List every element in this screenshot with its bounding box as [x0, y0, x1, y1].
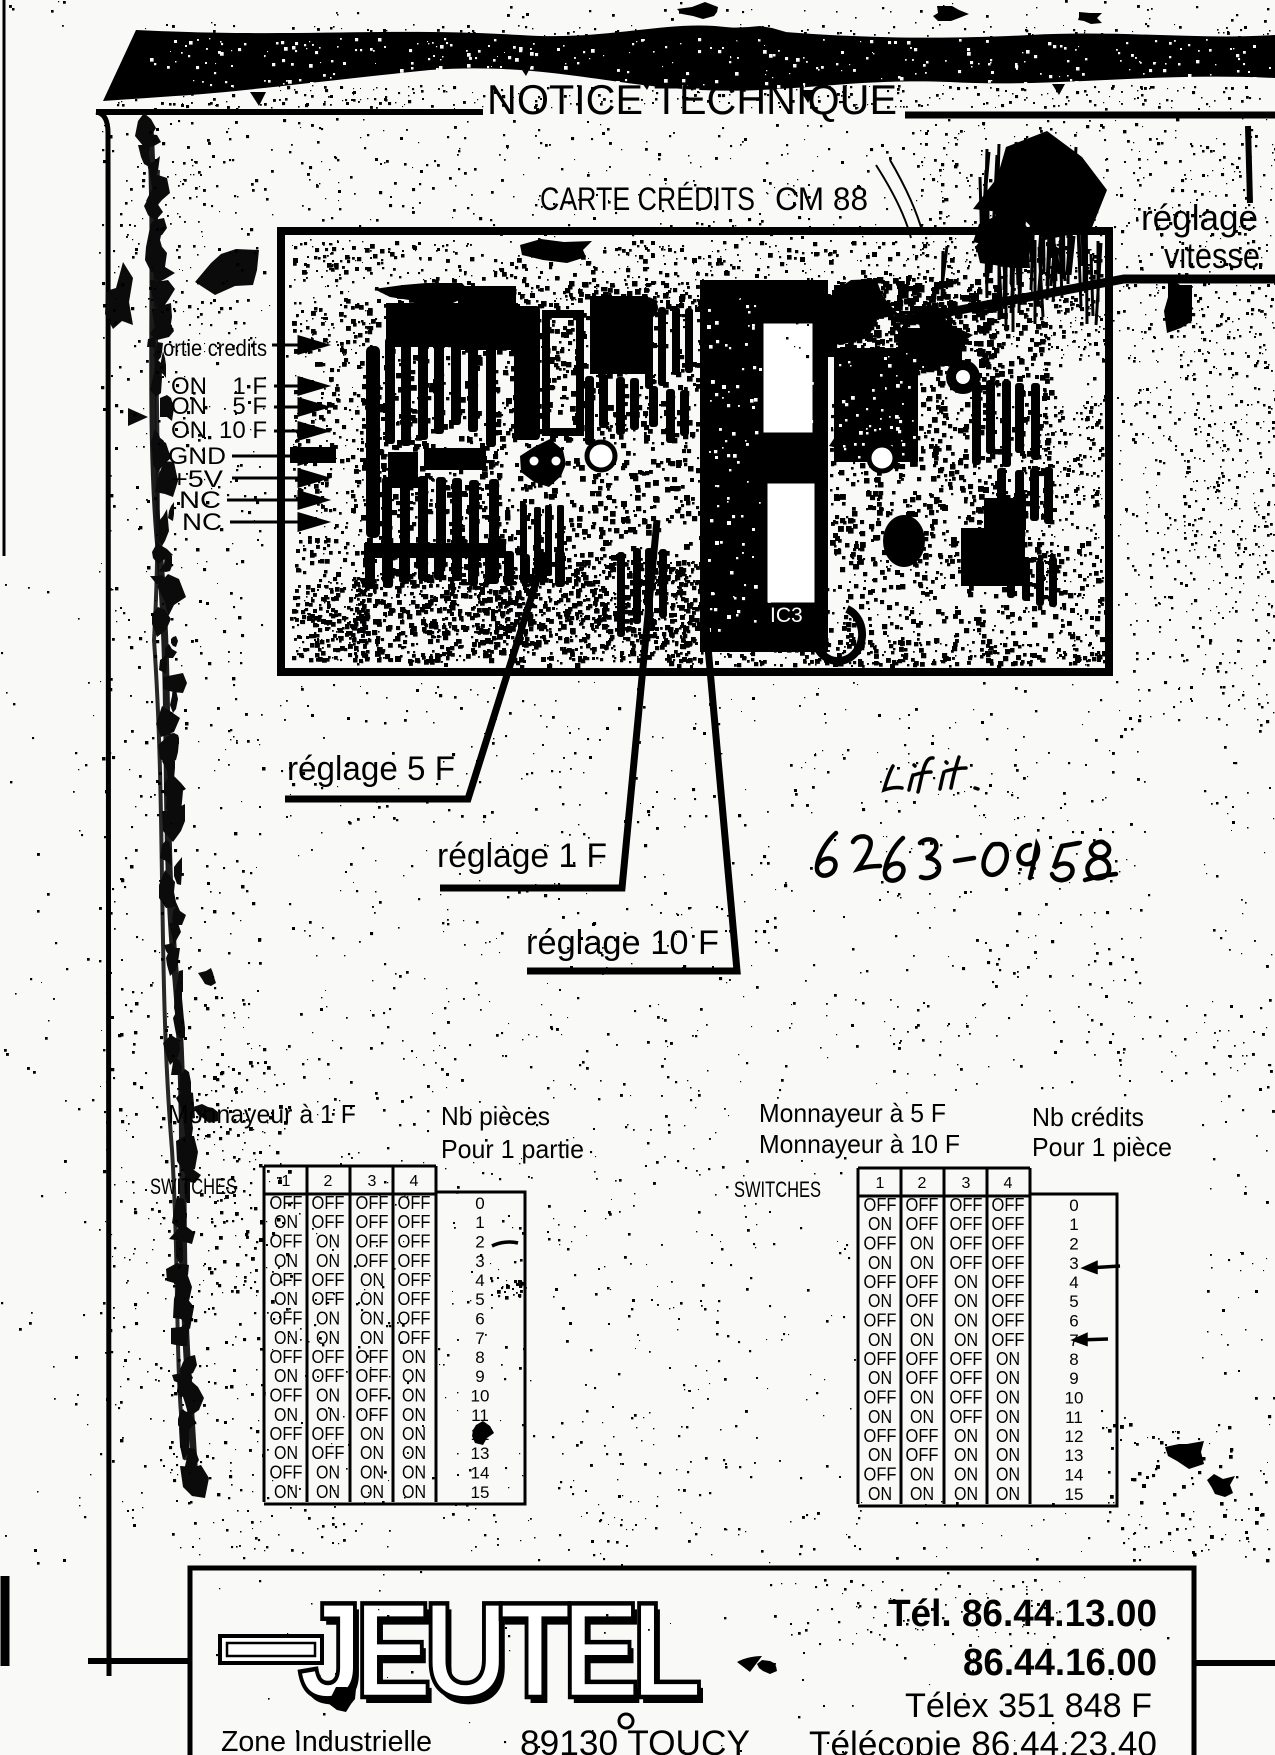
svg-text:OFF: OFF	[864, 1311, 897, 1331]
svg-text:13: 13	[1065, 1446, 1084, 1465]
svg-text:OFF: OFF	[906, 1349, 939, 1369]
svg-text:ON: ON	[954, 1291, 978, 1311]
svg-text:OFF: OFF	[398, 1212, 431, 1232]
svg-text:ON: ON	[868, 1407, 892, 1427]
svg-text:9: 9	[475, 1367, 484, 1386]
svg-text:4: 4	[1069, 1273, 1078, 1292]
svg-text:OFF: OFF	[356, 1232, 389, 1252]
svg-text:OFF: OFF	[356, 1193, 389, 1213]
svg-text:OFF: OFF	[398, 1270, 431, 1290]
svg-text:6: 6	[475, 1310, 484, 1329]
svg-text:ON: ON	[316, 1463, 340, 1483]
svg-text:ON: ON	[316, 1232, 340, 1252]
svg-text:ON: ON	[868, 1253, 892, 1273]
svg-text:Télex 351 848 F: Télex 351 848 F	[905, 1687, 1152, 1725]
svg-text:ON: ON	[954, 1465, 978, 1485]
svg-text:3: 3	[368, 1173, 377, 1190]
svg-text:ON: ON	[274, 1482, 298, 1502]
svg-text:ON: ON	[910, 1253, 934, 1273]
svg-text:15: 15	[1065, 1485, 1084, 1504]
svg-text:ON: ON	[868, 1330, 892, 1350]
svg-text:OFF: OFF	[312, 1443, 345, 1463]
svg-text:0: 0	[475, 1194, 484, 1213]
svg-text:OFF: OFF	[864, 1465, 897, 1485]
svg-text:ON: ON	[910, 1311, 934, 1331]
svg-text:OFF: OFF	[906, 1426, 939, 1446]
svg-text:ON: ON	[274, 1289, 298, 1309]
svg-text:OFF: OFF	[992, 1253, 1025, 1273]
svg-text:ON: ON	[274, 1366, 298, 1386]
svg-text:86.44.16.00: 86.44.16.00	[963, 1642, 1157, 1684]
svg-text:2: 2	[324, 1173, 333, 1190]
svg-text:réglage 5 F: réglage 5 F	[287, 750, 455, 788]
svg-text:Monnayeur à 1 F: Monnayeur à 1 F	[168, 1099, 356, 1129]
svg-text:OFF: OFF	[270, 1193, 303, 1213]
svg-text:ON: ON	[360, 1424, 384, 1444]
svg-text:OFF: OFF	[950, 1407, 983, 1427]
svg-text:ON: ON	[402, 1405, 426, 1425]
svg-text:ON: ON	[910, 1388, 934, 1408]
svg-text:5: 5	[1069, 1292, 1078, 1311]
svg-text:Pour 1 partie: Pour 1 partie	[441, 1134, 584, 1164]
svg-text:ON: ON	[910, 1407, 934, 1427]
svg-text:4: 4	[475, 1271, 484, 1290]
svg-text:OFF: OFF	[398, 1193, 431, 1213]
svg-text:ON: ON	[316, 1251, 340, 1271]
svg-text:1: 1	[282, 1173, 291, 1190]
svg-text:OFF: OFF	[356, 1366, 389, 1386]
svg-text:ON: ON	[996, 1388, 1020, 1408]
svg-text:CM 88: CM 88	[775, 181, 868, 217]
svg-text:10: 10	[1065, 1389, 1084, 1408]
svg-text:OFF: OFF	[864, 1426, 897, 1446]
svg-text:ON: ON	[910, 1465, 934, 1485]
svg-text:3: 3	[962, 1175, 971, 1192]
svg-text:3: 3	[1069, 1254, 1078, 1273]
svg-text:ON: ON	[171, 393, 207, 420]
svg-text:Nb crédits: Nb crédits	[1032, 1102, 1144, 1132]
svg-text:OFF: OFF	[312, 1270, 345, 1290]
svg-text:NOTICE TECHNIQUE: NOTICE TECHNIQUE	[487, 76, 897, 123]
svg-text:SWITCHES: SWITCHES	[150, 1174, 237, 1199]
svg-text:OFF: OFF	[270, 1424, 303, 1444]
svg-text:OFF: OFF	[950, 1253, 983, 1273]
svg-text:6: 6	[1069, 1312, 1078, 1331]
svg-text:ON: ON	[360, 1289, 384, 1309]
svg-text:OFF: OFF	[864, 1195, 897, 1215]
svg-text:1: 1	[475, 1213, 484, 1232]
svg-text:0: 0	[1069, 1196, 1078, 1215]
svg-text:89130 TOUCY: 89130 TOUCY	[520, 1724, 750, 1755]
svg-text:OFF: OFF	[356, 1251, 389, 1271]
svg-text:CARTE CRÉDITS: CARTE CRÉDITS	[540, 181, 755, 217]
svg-text:4: 4	[1004, 1175, 1013, 1192]
svg-text:1: 1	[876, 1175, 885, 1192]
svg-text:ON: ON	[996, 1484, 1020, 1504]
svg-text:11: 11	[471, 1406, 489, 1425]
svg-text:ON: ON	[868, 1214, 892, 1234]
svg-text:ON: ON	[954, 1484, 978, 1504]
svg-text:OFF: OFF	[992, 1311, 1025, 1331]
svg-text:2: 2	[918, 1175, 927, 1192]
svg-text:ON: ON	[171, 417, 207, 444]
svg-text:OFF: OFF	[312, 1212, 345, 1232]
svg-text:ON: ON	[868, 1291, 892, 1311]
svg-text:réglage 10 F: réglage 10 F	[526, 924, 719, 962]
svg-text:ON: ON	[402, 1366, 426, 1386]
svg-text:Pour 1 pièce: Pour 1 pièce	[1032, 1132, 1172, 1162]
svg-text:OFF: OFF	[270, 1463, 303, 1483]
svg-text:ON: ON	[910, 1330, 934, 1350]
svg-text:OFF: OFF	[398, 1251, 431, 1271]
svg-text:8: 8	[1069, 1350, 1078, 1369]
svg-text:7: 7	[475, 1329, 484, 1348]
svg-text:OFF: OFF	[356, 1405, 389, 1425]
svg-text:OFF: OFF	[312, 1347, 345, 1367]
svg-text:OFF: OFF	[398, 1289, 431, 1309]
svg-text:OFF: OFF	[992, 1291, 1025, 1311]
svg-text:10: 10	[471, 1387, 490, 1406]
svg-text:OFF: OFF	[906, 1195, 939, 1215]
svg-text:ON: ON	[274, 1328, 298, 1348]
svg-text:OFF: OFF	[906, 1291, 939, 1311]
svg-text:OFF: OFF	[356, 1212, 389, 1232]
svg-text:11: 11	[1065, 1408, 1083, 1427]
svg-text:ON: ON	[360, 1309, 384, 1329]
svg-text:ON: ON	[868, 1484, 892, 1504]
svg-text:OFF: OFF	[906, 1445, 939, 1465]
svg-text:OFF: OFF	[992, 1195, 1025, 1215]
svg-text:OFF: OFF	[906, 1272, 939, 1292]
svg-text:SWITCHES: SWITCHES	[734, 1177, 821, 1202]
svg-text:ON: ON	[316, 1309, 340, 1329]
svg-text:OFF: OFF	[950, 1388, 983, 1408]
svg-text:Tél. 86.44.13.00: Tél. 86.44.13.00	[888, 1593, 1157, 1635]
svg-text:OFF: OFF	[864, 1349, 897, 1369]
svg-text:ON: ON	[402, 1482, 426, 1502]
svg-text:ON: ON	[274, 1405, 298, 1425]
svg-text:ON: ON	[402, 1347, 426, 1367]
svg-text:ON: ON	[996, 1465, 1020, 1485]
svg-text:OFF: OFF	[398, 1328, 431, 1348]
svg-text:Télécopie 86.44.23.40: Télécopie 86.44.23.40	[809, 1725, 1157, 1755]
svg-text:9: 9	[1069, 1369, 1078, 1388]
svg-text:ON: ON	[274, 1251, 298, 1271]
svg-text:ON: ON	[868, 1445, 892, 1465]
svg-text:5: 5	[475, 1290, 484, 1309]
svg-text:1: 1	[1069, 1215, 1078, 1234]
svg-text:OFF: OFF	[864, 1388, 897, 1408]
svg-text:ON: ON	[910, 1484, 934, 1504]
svg-text:OFF: OFF	[950, 1368, 983, 1388]
svg-text:13: 13	[471, 1444, 490, 1463]
svg-text:ON: ON	[402, 1463, 426, 1483]
svg-text:OFF: OFF	[270, 1386, 303, 1406]
svg-text:15: 15	[471, 1483, 490, 1502]
svg-text:ON: ON	[954, 1426, 978, 1446]
svg-text:NC: NC	[182, 509, 222, 536]
svg-text:ON: ON	[360, 1463, 384, 1483]
svg-text:ON: ON	[996, 1445, 1020, 1465]
svg-text:ON: ON	[316, 1386, 340, 1406]
svg-text:vitesse: vitesse	[1164, 235, 1260, 276]
svg-text:ON: ON	[910, 1234, 934, 1254]
svg-text:ON: ON	[996, 1368, 1020, 1388]
svg-text:OFF: OFF	[950, 1234, 983, 1254]
svg-text:IC3: IC3	[770, 604, 803, 627]
svg-text:OFF: OFF	[356, 1386, 389, 1406]
svg-text:OFF: OFF	[992, 1234, 1025, 1254]
svg-text:14: 14	[471, 1464, 490, 1483]
svg-text:ON: ON	[996, 1349, 1020, 1369]
svg-text:OFF: OFF	[950, 1349, 983, 1369]
svg-text:OFF: OFF	[992, 1214, 1025, 1234]
svg-text:réglage 1 F: réglage 1 F	[437, 837, 607, 875]
svg-text:OFF: OFF	[270, 1232, 303, 1252]
svg-text:2: 2	[1069, 1235, 1078, 1254]
svg-text:ON: ON	[996, 1426, 1020, 1446]
svg-text:ON: ON	[954, 1272, 978, 1292]
svg-text:ON: ON	[316, 1482, 340, 1502]
svg-text:ON: ON	[402, 1443, 426, 1463]
svg-text:ON: ON	[360, 1328, 384, 1348]
svg-text:4: 4	[410, 1173, 419, 1190]
svg-text:OFF: OFF	[864, 1272, 897, 1292]
svg-text:12: 12	[1065, 1427, 1084, 1446]
svg-text:ON: ON	[996, 1407, 1020, 1427]
svg-text:OFF: OFF	[270, 1270, 303, 1290]
svg-text:OFF: OFF	[864, 1234, 897, 1254]
svg-text:ON: ON	[360, 1482, 384, 1502]
svg-text:OFF: OFF	[312, 1193, 345, 1213]
svg-text:10 F: 10 F	[219, 417, 267, 444]
svg-text:ON: ON	[274, 1212, 298, 1232]
svg-text:JEUTEL: JEUTEL	[298, 1574, 699, 1726]
svg-text:OFF: OFF	[906, 1368, 939, 1388]
svg-text:ON: ON	[360, 1443, 384, 1463]
svg-text:OFF: OFF	[312, 1366, 345, 1386]
svg-text:ON: ON	[954, 1445, 978, 1465]
svg-text:14: 14	[1065, 1466, 1084, 1485]
svg-text:2: 2	[475, 1233, 484, 1252]
svg-text:ON: ON	[954, 1311, 978, 1331]
svg-text:Monnayeur à 5 F: Monnayeur à 5 F	[759, 1098, 946, 1128]
svg-text:OFF: OFF	[992, 1272, 1025, 1292]
svg-text:OFF: OFF	[906, 1214, 939, 1234]
svg-text:ON: ON	[868, 1368, 892, 1388]
svg-text:Monnayeur à 10 F: Monnayeur à 10 F	[759, 1129, 960, 1159]
svg-text:ON: ON	[402, 1386, 426, 1406]
svg-text:ON: ON	[954, 1330, 978, 1350]
svg-text:8: 8	[475, 1348, 484, 1367]
svg-text:OFF: OFF	[950, 1214, 983, 1234]
svg-text:ON: ON	[274, 1443, 298, 1463]
svg-text:OFF: OFF	[992, 1330, 1025, 1350]
svg-text:5 F: 5 F	[232, 393, 267, 420]
svg-text:ON: ON	[360, 1270, 384, 1290]
svg-text:OFF: OFF	[398, 1232, 431, 1252]
svg-text:OFF: OFF	[950, 1195, 983, 1215]
svg-text:OFF: OFF	[270, 1347, 303, 1367]
svg-text:OFF: OFF	[312, 1424, 345, 1444]
svg-text:OFF: OFF	[356, 1347, 389, 1367]
